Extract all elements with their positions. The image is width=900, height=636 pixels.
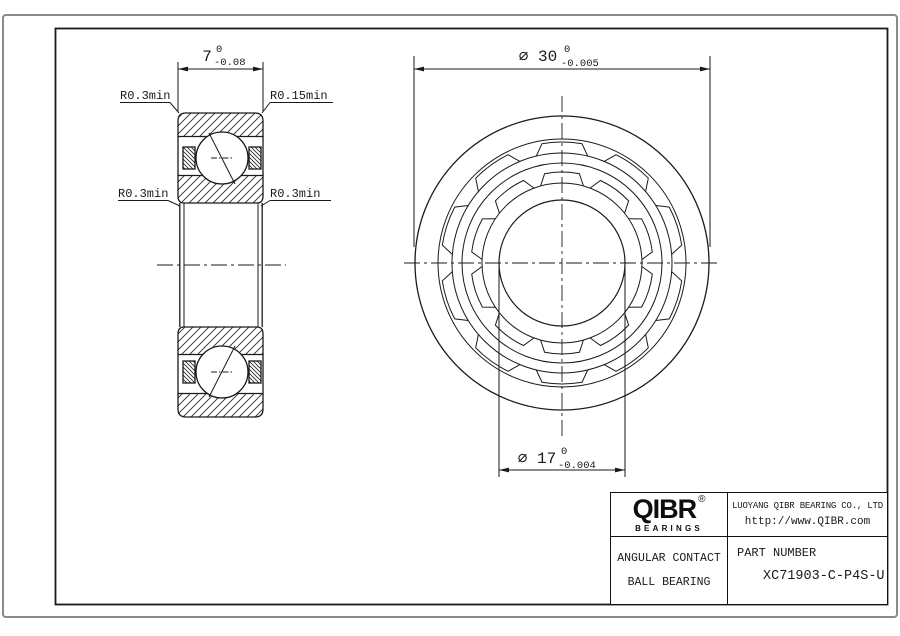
section-view (157, 113, 286, 417)
part-number-value: XC71903-C-P4S-U (763, 569, 887, 584)
logo-cell: QIBR ® BEARINGS (611, 493, 728, 537)
outer-diameter-value: ⌀ 30 (519, 48, 557, 66)
drawing-page: 7 0 -0.08 ⌀ 30 0 -0.005 ⌀ 17 0 -0.004 R0… (0, 0, 900, 636)
r-annotation-mid-right: R0.3min (270, 187, 320, 201)
product-line1: ANGULAR CONTACT (617, 547, 721, 571)
arrow-right (700, 67, 710, 72)
arrow-left (414, 67, 424, 72)
cage-top-left (183, 147, 195, 169)
title-block: QIBR ® BEARINGS LUOYANG QIBR BEARING CO.… (610, 492, 888, 605)
part-cell: PART NUMBER XC71903-C-P4S-U (728, 537, 887, 604)
front-view (404, 96, 721, 437)
bore-diameter-value: ⌀ 17 (518, 450, 556, 468)
registered-mark: ® (698, 495, 705, 505)
r-annotation-top-right: R0.15min (270, 89, 328, 103)
part-number-label: PART NUMBER (737, 546, 887, 560)
bore-diameter-tol-lower: -0.004 (558, 460, 596, 472)
r-annotation-top-left: R0.3min (120, 89, 170, 103)
cage-bottom-left (183, 361, 195, 383)
company-name: LUOYANG QIBR BEARING CO., LTD (732, 501, 883, 511)
arrow-left (499, 468, 509, 473)
r-annotation-mid-left: R0.3min (118, 187, 168, 201)
arrow-right (615, 468, 625, 473)
product-line2: BALL BEARING (628, 571, 711, 595)
arrow-right (253, 67, 263, 72)
bore-diameter-tol-upper: 0 (561, 446, 567, 458)
arrow-left (178, 67, 188, 72)
company-cell: LUOYANG QIBR BEARING CO., LTD http://www… (728, 493, 887, 537)
width-tol-upper: 0 (216, 44, 222, 56)
width-dimension (178, 62, 263, 111)
company-url: http://www.QIBR.com (745, 516, 870, 528)
outer-diameter-tol-upper: 0 (564, 44, 570, 56)
brand-sub-label: BEARINGS (635, 524, 703, 533)
cage-bottom-right (249, 361, 261, 383)
width-value: 7 (202, 48, 212, 66)
width-tol-lower: -0.08 (214, 57, 246, 69)
brand-logo: QIBR (633, 496, 697, 523)
product-cell: ANGULAR CONTACT BALL BEARING (611, 537, 728, 604)
cage-top-right (249, 147, 261, 169)
outer-diameter-tol-lower: -0.005 (561, 58, 599, 70)
